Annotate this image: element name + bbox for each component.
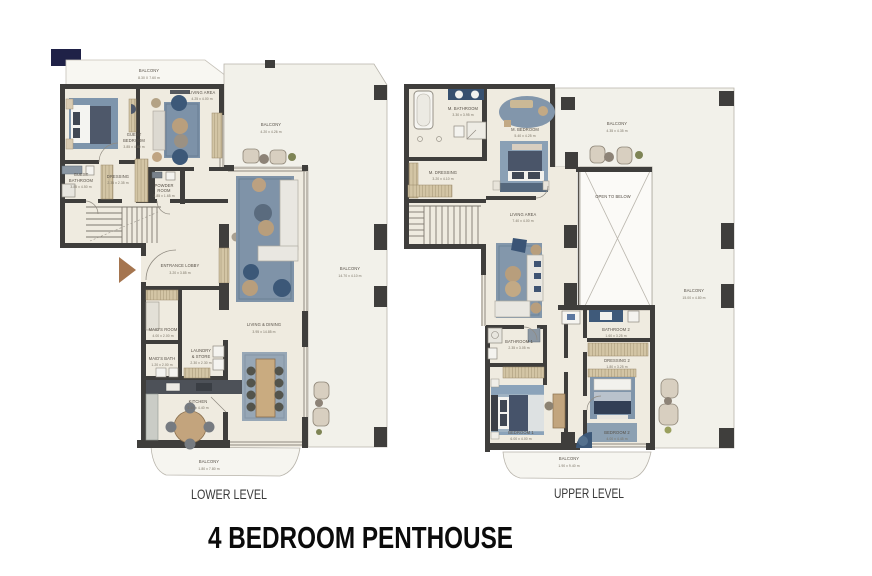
svg-text:MAID'S BATH: MAID'S BATH — [149, 356, 176, 361]
svg-text:BEDROOM: BEDROOM — [123, 138, 145, 143]
svg-text:3.20 x 3.85 m: 3.20 x 3.85 m — [169, 271, 190, 275]
svg-text:BALCONY: BALCONY — [607, 121, 627, 126]
svg-text:LIVING AREA: LIVING AREA — [510, 212, 537, 217]
svg-text:1.80 x 3.25 m: 1.80 x 3.25 m — [606, 365, 627, 369]
svg-text:4 BEDROOM PENTHOUSE: 4 BEDROOM PENTHOUSE — [208, 520, 513, 555]
svg-text:3.30 x 3.95 m: 3.30 x 3.95 m — [452, 113, 473, 117]
svg-text:UPPER LEVEL: UPPER LEVEL — [554, 485, 624, 501]
svg-text:4.35 x 4.35 m: 4.35 x 4.35 m — [606, 129, 627, 133]
svg-text:15.00 x 4.80 m: 15.00 x 4.80 m — [682, 296, 705, 300]
svg-text:BATHROOM 1: BATHROOM 1 — [505, 339, 533, 344]
svg-text:LAUNDRY: LAUNDRY — [191, 348, 211, 353]
svg-text:2.30 x 2.30 m: 2.30 x 2.30 m — [190, 361, 211, 365]
svg-text:2.35 x 3.05 m: 2.35 x 3.05 m — [508, 346, 529, 350]
svg-text:LIVING AREA: LIVING AREA — [189, 90, 216, 95]
svg-text:5.40 x 4.25 m: 5.40 x 4.25 m — [514, 134, 535, 138]
svg-text:BALCONY: BALCONY — [340, 266, 360, 271]
svg-text:7.40 x 4.00 m: 7.40 x 4.00 m — [512, 219, 533, 223]
svg-text:BATHROOM: BATHROOM — [69, 178, 94, 183]
svg-text:KITCHEN: KITCHEN — [189, 399, 208, 404]
svg-text:MAID'S ROOM: MAID'S ROOM — [149, 327, 178, 332]
svg-text:GUEST: GUEST — [74, 172, 89, 177]
svg-text:3.85 x 4.50 m: 3.85 x 4.50 m — [70, 185, 91, 189]
svg-text:BATHROOM 2: BATHROOM 2 — [602, 327, 630, 332]
svg-text:1.90 x 9.40 m: 1.90 x 9.40 m — [558, 464, 579, 468]
svg-text:2.35 x 2.35 m: 2.35 x 2.35 m — [107, 181, 128, 185]
svg-text:8.30 X 7.60 m: 8.30 X 7.60 m — [138, 76, 160, 80]
svg-text:OPEN TO BELOW: OPEN TO BELOW — [595, 194, 631, 199]
svg-text:1.85 x 1.65 m: 1.85 x 1.65 m — [153, 194, 174, 198]
svg-text:1.80 x 7.80 m: 1.80 x 7.80 m — [198, 467, 219, 471]
svg-text:4.20 x 4.26 m: 4.20 x 4.26 m — [260, 130, 281, 134]
svg-text:4.00 x 2.00 m: 4.00 x 2.00 m — [152, 334, 173, 338]
svg-text:ENTRANCE LOBBY: ENTRANCE LOBBY — [161, 263, 200, 268]
svg-text:BEDROOM 1: BEDROOM 1 — [508, 430, 534, 435]
svg-text:6.00 x 4.00 m: 6.00 x 4.00 m — [510, 437, 531, 441]
svg-text:LOWER LEVEL: LOWER LEVEL — [191, 486, 267, 502]
svg-text:BEDROOM 2: BEDROOM 2 — [604, 430, 630, 435]
svg-text:ROOM: ROOM — [157, 188, 171, 193]
svg-text:BALCONY: BALCONY — [261, 122, 281, 127]
svg-text:3.40 x 4.40 m: 3.40 x 4.40 m — [187, 406, 208, 410]
svg-text:3.85 x 4.60 m: 3.85 x 4.60 m — [123, 145, 144, 149]
svg-text:14.70 x 4.10 m: 14.70 x 4.10 m — [338, 274, 361, 278]
svg-text:1.60 x 3.25 m: 1.60 x 3.25 m — [605, 334, 626, 338]
svg-text:GUEST: GUEST — [127, 132, 142, 137]
svg-text:4.00 x 4.45 m: 4.00 x 4.45 m — [606, 437, 627, 441]
svg-text:BALCONY: BALCONY — [139, 68, 159, 73]
svg-text:M. DRESSING: M. DRESSING — [429, 170, 457, 175]
svg-text:DRESSING: DRESSING — [107, 174, 129, 179]
svg-text:3.95 x 14.85 m: 3.95 x 14.85 m — [252, 330, 275, 334]
svg-text:BALCONY: BALCONY — [199, 459, 219, 464]
svg-text:3.20 x 4.10 m: 3.20 x 4.10 m — [432, 177, 453, 181]
svg-text:BALCONY: BALCONY — [684, 288, 704, 293]
svg-text:4.25 x 4.00 m: 4.25 x 4.00 m — [191, 97, 212, 101]
svg-text:1.20 x 2.00 m: 1.20 x 2.00 m — [151, 363, 172, 367]
svg-text:BALCONY: BALCONY — [559, 456, 579, 461]
svg-text:& STORE: & STORE — [192, 354, 211, 359]
svg-text:DRESSING 2: DRESSING 2 — [604, 358, 630, 363]
svg-text:M. BEDROOM: M. BEDROOM — [511, 127, 539, 132]
svg-text:M. BATHROOM: M. BATHROOM — [448, 106, 479, 111]
svg-text:LIVING & DINING: LIVING & DINING — [247, 322, 281, 327]
